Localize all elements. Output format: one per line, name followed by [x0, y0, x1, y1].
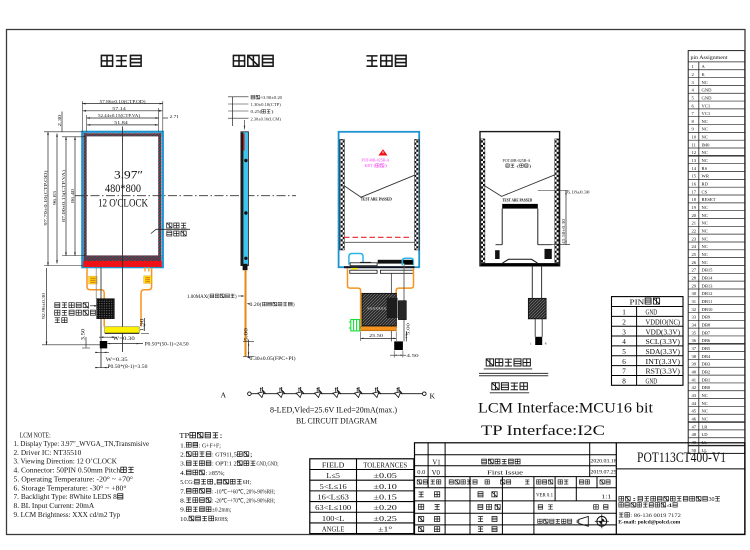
svg-text:34: 34 — [692, 322, 697, 327]
svg-text:NC: NC — [702, 80, 708, 85]
svg-text:2.71: 2.71 — [170, 114, 180, 119]
svg-text:GND: GND — [702, 95, 713, 100]
svg-text:2. Driver IC: NT35510: 2. Driver IC: NT35510 — [14, 450, 82, 457]
svg-text:42: 42 — [692, 385, 697, 390]
svg-text:NC: NC — [702, 205, 708, 210]
svg-text:45: 45 — [692, 409, 697, 414]
svg-text:PIN: PIN — [630, 297, 645, 306]
svg-text:2019.07.29: 2019.07.29 — [591, 470, 618, 475]
svg-text:P0.50*(8-1)=3.50: P0.50*(8-1)=3.50 — [107, 365, 148, 370]
svg-text:39: 39 — [692, 362, 697, 367]
svg-text:POT40B-025B-A: POT40B-025B-A — [503, 158, 532, 163]
svg-text:NC: NC — [702, 236, 708, 241]
svg-text:18: 18 — [692, 197, 697, 202]
svg-text:POT40B-025B-A: POT40B-025B-A — [362, 157, 391, 162]
svg-text:VC1: VC1 — [702, 111, 711, 116]
svg-text:1.30±0.10(CTP): 1.30±0.10(CTP) — [251, 102, 282, 107]
svg-text:: G+F+F;: : G+F+F; — [199, 443, 221, 449]
svg-text:86.40: 86.40 — [70, 188, 75, 203]
svg-text:96.83: 96.83 — [52, 190, 57, 205]
svg-text:25.50: 25.50 — [369, 333, 384, 338]
svg-text:: -10℃~+60℃, 20%-90%RH;: : -10℃~+60℃, 20%-90%RH; — [212, 489, 275, 495]
svg-text:28: 28 — [692, 276, 697, 281]
svg-text:92.96±0.30: 92.96±0.30 — [41, 292, 46, 319]
svg-text:51.84: 51.84 — [114, 120, 128, 125]
svg-text:NC: NC — [702, 229, 708, 234]
svg-text:15: 15 — [692, 174, 697, 179]
svg-text:13: 13 — [692, 158, 697, 163]
svg-text:NC: NC — [702, 409, 708, 414]
svg-text:0.30±0.05(FPC+PI): 0.30±0.05(FPC+PI) — [250, 357, 296, 362]
svg-text:38: 38 — [692, 354, 697, 359]
svg-text:4: 4 — [622, 338, 626, 346]
svg-text:25: 25 — [692, 252, 697, 257]
svg-text:2: 2 — [622, 318, 626, 326]
svg-text:POT113CT400-V1: POT113CT400-V1 — [637, 450, 726, 466]
svg-text:First Issue: First Issue — [487, 469, 523, 476]
svg-text:DB0: DB0 — [702, 385, 711, 390]
svg-text:NC: NC — [702, 119, 708, 124]
svg-text:NC: NC — [702, 158, 708, 163]
svg-text:2.30: 2.30 — [57, 113, 62, 126]
svg-text:GND,GND;: GND,GND; — [257, 462, 279, 468]
svg-text:45.50±0.30: 45.50±0.30 — [561, 218, 566, 244]
svg-text:ROHS;: ROHS; — [215, 517, 229, 523]
svg-text:19: 19 — [692, 205, 697, 210]
svg-text:10.: 10. — [180, 517, 189, 523]
svg-text:43: 43 — [692, 393, 697, 398]
svg-text:NC: NC — [702, 127, 708, 132]
svg-text:±0.2mm;: ±0.2mm; — [212, 508, 231, 514]
svg-text:0.20(: 0.20( — [250, 303, 262, 308]
svg-text:3: 3 — [622, 328, 626, 336]
svg-text:24: 24 — [692, 244, 697, 249]
svg-text:NC: NC — [702, 244, 708, 249]
svg-text:29: 29 — [692, 283, 697, 288]
svg-text:1. Display Type: 3.97″_WVGA_TN: 1. Display Type: 3.97″_WVGA_TN,Transmisi… — [14, 441, 150, 448]
svg-text:5.CG:: 5.CG: — [180, 480, 194, 486]
svg-text:RST(3.3V): RST(3.3V) — [646, 368, 681, 376]
svg-text:6H;: 6H; — [243, 480, 251, 486]
svg-text:2020.03.18: 2020.03.18 — [591, 460, 618, 465]
svg-text:8. BL Input Current: 20mA: 8. BL Input Current: 20mA — [14, 503, 95, 510]
svg-text:DB11: DB11 — [702, 299, 714, 304]
svg-text:DB10: DB10 — [702, 307, 714, 312]
svg-text:4: 4 — [667, 503, 673, 509]
svg-text:NC: NC — [702, 401, 708, 406]
svg-text:RESET: RESET — [702, 197, 716, 202]
svg-text:: ≥85%;: : ≥85%; — [205, 471, 224, 477]
svg-text:DB3: DB3 — [702, 362, 711, 367]
svg-text:8-LED,Vled=25.6V ILed=20mA(max: 8-LED,Vled=25.6V ILed=20mA(max.) — [270, 405, 397, 414]
svg-text:: -20℃~+70℃, 20%-90%RH;: : -20℃~+70℃, 20%-90%RH; — [212, 499, 275, 505]
svg-text:K: K — [430, 391, 436, 400]
svg-text:63<L≤100: 63<L≤100 — [315, 503, 351, 512]
svg-text:21: 21 — [692, 221, 697, 226]
svg-text:DB15: DB15 — [702, 268, 714, 273]
svg-text:TOLERANCES: TOLERANCES — [363, 460, 407, 469]
svg-text:P0.50*(50-1)=24.50: P0.50*(50-1)=24.50 — [145, 343, 190, 348]
svg-text:LR: LR — [702, 424, 709, 429]
svg-text:±0.15: ±0.15 — [373, 492, 397, 501]
svg-text:4.50: 4.50 — [407, 353, 420, 358]
svg-text:1:1: 1:1 — [601, 493, 611, 500]
svg-text:: GT911,5: : GT911,5 — [212, 453, 237, 459]
svg-text:;: ; — [250, 453, 253, 459]
svg-text:0.25(: 0.25( — [251, 109, 262, 114]
svg-text:±1°: ±1° — [378, 525, 392, 534]
svg-text:9. LCM Brightness: XXX cd/m2: 9. LCM Brightness: XXX cd/m2 Typ — [14, 512, 121, 519]
svg-text:DB6: DB6 — [702, 338, 711, 343]
svg-text:32: 32 — [692, 307, 697, 312]
svg-text:33: 33 — [692, 315, 697, 320]
svg-text:VER 0.1: VER 0.1 — [536, 493, 554, 498]
svg-text:E-mail: polcd@polcd.com: E-mail: polcd@polcd.com — [618, 519, 680, 525]
svg-text:87.00±0.15(CTP.VA): 87.00±0.15(CTP.VA) — [61, 169, 66, 222]
svg-text:WR: WR — [702, 174, 710, 179]
svg-text:47: 47 — [692, 424, 697, 429]
svg-text:BL CIRCUIT DIAGRAM: BL CIRCUIT DIAGRAM — [296, 417, 377, 426]
svg-text:52.44±0.15(CTP.VA): 52.44±0.15(CTP.VA) — [98, 113, 141, 118]
svg-text:16<L≤63: 16<L≤63 — [317, 492, 349, 501]
svg-text:TEST ARE PASSED: TEST ARE PASSED — [361, 197, 392, 202]
svg-text:XXXXXXXX: XXXXXXXX — [367, 307, 390, 311]
svg-text:DB7: DB7 — [702, 330, 711, 335]
svg-text:1: 1 — [622, 309, 626, 317]
svg-text:TP: TP — [179, 432, 189, 440]
svg-text:4.: 4. — [180, 471, 186, 477]
svg-text:12: 12 — [692, 150, 697, 155]
svg-text:5: 5 — [622, 348, 626, 356]
svg-text:±0.05: ±0.05 — [373, 471, 397, 480]
svg-text:DB12: DB12 — [702, 291, 714, 296]
svg-text:20: 20 — [692, 213, 697, 218]
svg-text:V0: V0 — [432, 470, 441, 477]
svg-text:: OPT:1 2: : OPT:1 2 — [212, 462, 237, 468]
svg-text:7: 7 — [622, 368, 626, 376]
svg-text:30: 30 — [709, 497, 715, 503]
svg-text:pin Assignment: pin Assignment — [691, 56, 729, 61]
svg-text:TEST ARE PASSED: TEST ARE PASSED — [502, 197, 532, 202]
svg-text:16.18±0.30: 16.18±0.30 — [565, 190, 591, 195]
svg-text:NC: NC — [702, 260, 708, 265]
svg-text:GND: GND — [646, 378, 658, 386]
svg-text:RD: RD — [702, 182, 709, 187]
svg-text:1: 1 — [530, 342, 532, 346]
svg-text:FIELD: FIELD — [322, 460, 345, 469]
svg-text:NC: NC — [702, 213, 708, 218]
svg-text:30: 30 — [692, 291, 697, 296]
svg-text::: : — [219, 432, 222, 440]
svg-text:0.0: 0.0 — [417, 469, 425, 476]
svg-text:5.00: 5.00 — [405, 322, 410, 335]
svg-text:TP Interface:I2C: TP Interface:I2C — [481, 423, 605, 439]
svg-text:7.: 7. — [180, 489, 186, 495]
svg-text:W=0.30: W=0.30 — [113, 337, 136, 342]
svg-text:≈3.90±0.20: ≈3.90±0.20 — [260, 95, 282, 100]
svg-text:22: 22 — [692, 229, 697, 234]
svg-text:5<L≤16: 5<L≤16 — [320, 482, 347, 491]
svg-text:37: 37 — [692, 346, 697, 351]
svg-text:NC: NC — [702, 393, 708, 398]
svg-text:2.30±0.10(LCM): 2.30±0.10(LCM) — [251, 116, 282, 121]
svg-text:1.00MAX(: 1.00MAX( — [187, 295, 209, 300]
svg-text:12 O'CLOCK: 12 O'CLOCK — [98, 195, 148, 209]
svg-text:57.14: 57.14 — [112, 106, 126, 111]
svg-text:3.50: 3.50 — [82, 328, 87, 341]
svg-text:±0.10: ±0.10 — [373, 482, 397, 491]
svg-text:41: 41 — [692, 377, 697, 382]
svg-text:LCM NOTE:: LCM NOTE: — [20, 432, 51, 439]
svg-text:VDD(3.3V): VDD(3.3V) — [646, 328, 681, 336]
svg-text:57.86±0.10(CTP.OD): 57.86±0.10(CTP.OD) — [100, 99, 147, 104]
svg-text:DB13: DB13 — [702, 283, 714, 288]
svg-text:NC: NC — [702, 150, 708, 155]
svg-text:40: 40 — [692, 369, 697, 374]
svg-text:3. Viewing Direction: 12 O’CLO: 3. Viewing Direction: 12 O’CLOCK — [14, 459, 117, 466]
svg-text:48: 48 — [692, 432, 697, 437]
svg-text:8: 8 — [545, 342, 547, 346]
svg-text:23: 23 — [692, 236, 697, 241]
svg-text:7. Backlight Type: 8White LEDS: 7. Backlight Type: 8White LEDS 8 — [14, 494, 118, 501]
svg-text:46: 46 — [692, 416, 697, 421]
svg-text:RS: RS — [702, 166, 708, 171]
svg-text:ANGLE: ANGLE — [322, 525, 345, 534]
svg-text:·(: ·( — [515, 163, 520, 168]
svg-text:DB5: DB5 — [702, 346, 711, 351]
svg-text:NC: NC — [702, 252, 708, 257]
svg-text:DB1: DB1 — [702, 377, 711, 382]
svg-text:L≤5: L≤5 — [326, 471, 340, 480]
svg-text:V1: V1 — [432, 459, 440, 466]
svg-text:IM0: IM0 — [702, 142, 711, 147]
svg-text:8.: 8. — [180, 499, 186, 505]
svg-text:W=0.35: W=0.35 — [106, 358, 129, 363]
svg-text:4. Connector: 50PIN 0.50mm Pit: 4. Connector: 50PIN 0.50mm Pitch — [14, 468, 121, 475]
svg-text:NC: NC — [702, 416, 708, 421]
svg-text:8: 8 — [622, 378, 626, 386]
svg-text:DB2: DB2 — [702, 369, 711, 374]
svg-text:KBT·(: KBT·( — [365, 163, 376, 168]
svg-text:GND: GND — [702, 88, 713, 93]
svg-text:SDA(3.3V): SDA(3.3V) — [646, 348, 681, 356]
svg-text:LCM Interface:MCU16 bit: LCM Interface:MCU16 bit — [478, 401, 653, 417]
svg-text:11: 11 — [692, 142, 697, 147]
svg-text:31: 31 — [692, 299, 697, 304]
svg-text:27: 27 — [692, 268, 697, 273]
svg-text:35: 35 — [692, 330, 697, 335]
svg-text:97.70±0.10(CTP.OD): 97.70±0.10(CTP.OD) — [43, 170, 48, 226]
svg-text:1.: 1. — [180, 443, 186, 449]
svg-text:9.: 9. — [180, 508, 186, 514]
svg-text:DB8: DB8 — [702, 322, 711, 327]
svg-text:36: 36 — [692, 338, 697, 343]
svg-text:NC: NC — [702, 221, 708, 226]
svg-text:SCL(3.3V): SCL(3.3V) — [646, 338, 681, 346]
svg-text:5. Operating Temperature: -20°: 5. Operating Temperature: -20° ~ +70° — [14, 476, 134, 483]
svg-text:LD: LD — [702, 432, 709, 437]
svg-text:INT(3.3V): INT(3.3V) — [646, 358, 681, 366]
svg-text:6. Storage Temperature: -30° ~: 6. Storage Temperature: -30° ~ +80° — [14, 485, 127, 492]
svg-text:NC: NC — [702, 135, 708, 140]
svg-text:17: 17 — [692, 189, 697, 194]
svg-text:CS: CS — [702, 189, 708, 194]
svg-text:3.: 3. — [180, 462, 186, 468]
svg-text:±0.25: ±0.25 — [373, 514, 397, 523]
svg-text:6: 6 — [622, 358, 626, 366]
svg-text:A: A — [221, 390, 227, 399]
svg-text:2.: 2. — [180, 453, 186, 459]
svg-text:VDDIO(NC): VDDIO(NC) — [646, 318, 681, 326]
svg-text:±0.20: ±0.20 — [373, 503, 397, 512]
svg-text:44: 44 — [692, 401, 697, 406]
svg-text:26: 26 — [692, 260, 697, 265]
svg-text:14: 14 — [692, 166, 697, 171]
svg-text:VC1: VC1 — [702, 103, 711, 108]
svg-text:3.97″: 3.97″ — [114, 167, 143, 181]
svg-text:100<L: 100<L — [322, 514, 345, 523]
svg-text:480*800: 480*800 — [105, 181, 141, 195]
svg-text:: 86-136 0019 7172: : 86-136 0019 7172 — [630, 513, 681, 519]
svg-text:DB14: DB14 — [702, 276, 714, 281]
svg-text:DB4: DB4 — [702, 354, 711, 359]
svg-text:10: 10 — [692, 135, 697, 140]
svg-text:5.00: 5.00 — [244, 327, 249, 341]
svg-text:16: 16 — [692, 182, 697, 187]
svg-text:GND: GND — [646, 309, 658, 317]
svg-text:DB9: DB9 — [702, 315, 711, 320]
